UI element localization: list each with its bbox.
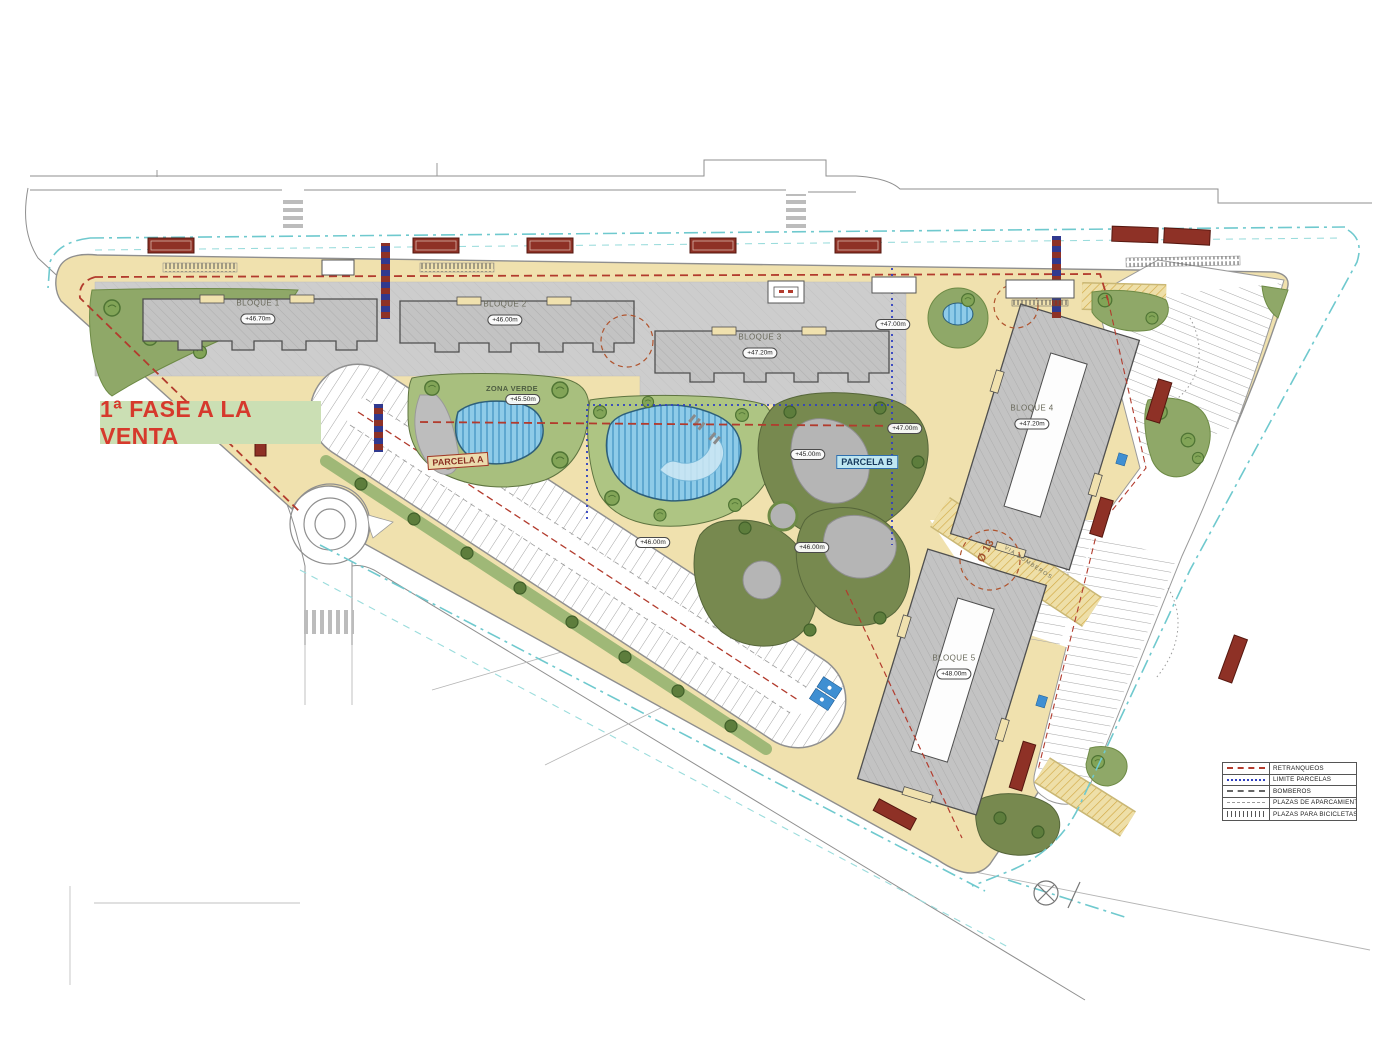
bloque-4-elevation: +47.20m <box>1014 419 1049 430</box>
elevation-marker-5: +46.00m <box>794 536 829 554</box>
legend-row-bomberos: BOMBEROS <box>1223 786 1356 798</box>
crosswalk-south <box>302 610 354 634</box>
bloque-1-label: BLOQUE 1 +46.70m <box>236 299 279 326</box>
bloque-5-elevation: +48.00m <box>936 669 971 680</box>
elevation-marker-3: +45.00m <box>790 443 825 461</box>
legend-row-plazas-bicicletas: PLAZAS PARA BICICLETAS <box>1223 809 1356 820</box>
legend-swatch-red-dashed <box>1223 763 1270 774</box>
legend-swatch-tick-hatch <box>1223 809 1270 820</box>
bloque-3-elevation: +47.20m <box>742 348 777 359</box>
legend-row-plazas-aparcamiento: PLAZAS DE APARCAMIENTO <box>1223 798 1356 810</box>
phase-banner: 1ª FASE A LA VENTA <box>100 401 321 444</box>
elevation-marker-1: +47.00m <box>875 313 910 331</box>
parcela-b-label: PARCELA B <box>836 455 898 469</box>
bloque-2-elevation: +46.00m <box>487 315 522 326</box>
crosswalk-top-mid <box>786 194 806 230</box>
bloque-5-label: BLOQUE 5 +48.00m <box>932 654 975 681</box>
legend-swatch-blue-dotted <box>1223 775 1270 786</box>
bloque-1-elevation: +46.70m <box>240 314 275 325</box>
elevation-marker-2: +47.00m <box>887 417 922 435</box>
zona-verde-elevation: +45.50m <box>505 388 540 406</box>
plan-drawing <box>0 0 1400 1050</box>
bloque-3-label: BLOQUE 3 +47.20m <box>738 333 781 360</box>
site-plan: 1ª FASE A LA VENTA BLOQUE 1 +46.70m BLOQ… <box>0 0 1400 1050</box>
elevation-marker-4: +46.00m <box>635 531 670 549</box>
crosswalk-top-left <box>283 196 303 230</box>
bloque-2-label: BLOQUE 2 +46.00m <box>483 300 526 327</box>
legend-row-limite-parcelas: LIMITE PARCELAS <box>1223 775 1356 787</box>
bloque-4-label: BLOQUE 4 +47.20m <box>1010 404 1053 431</box>
legend-swatch-gray-dashed <box>1223 786 1270 797</box>
legend-row-retranqueos: RETRANQUEOS <box>1223 763 1356 775</box>
phase-banner-label: 1ª FASE A LA VENTA <box>100 396 321 450</box>
legend-swatch-thin-dashed <box>1223 798 1270 809</box>
legend: RETRANQUEOS LIMITE PARCELAS BOMBEROS PLA… <box>1222 762 1357 821</box>
